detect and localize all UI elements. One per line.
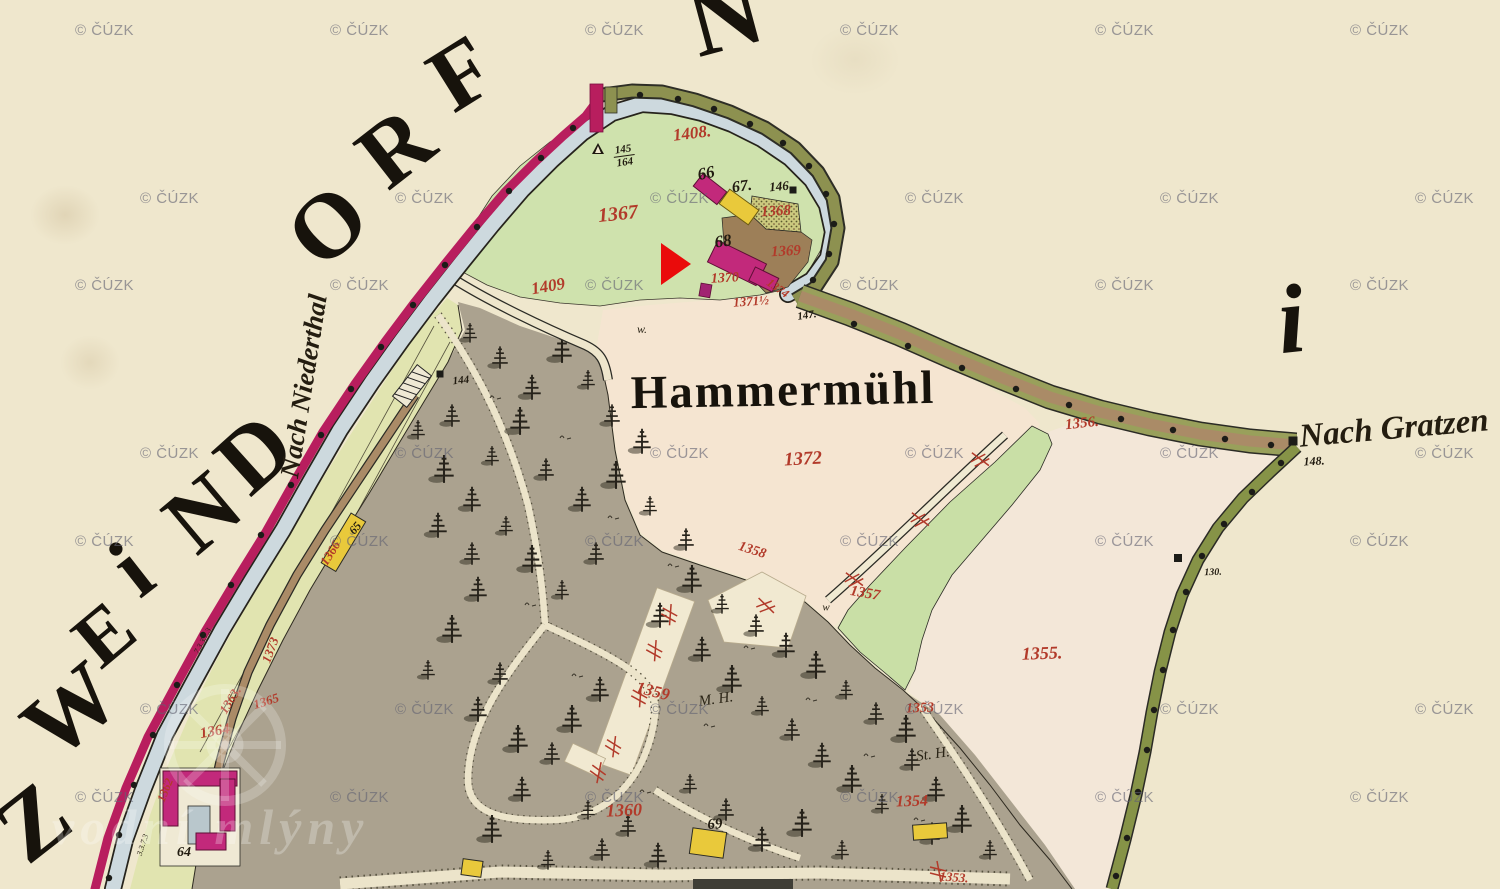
parcel-number: 1373 <box>259 636 280 665</box>
parcel-number: 1360 <box>606 800 643 819</box>
place-label: Nach Niederthal <box>276 292 332 479</box>
map-note: St. H. <box>915 745 951 765</box>
parcel-number: 1409 <box>530 275 566 298</box>
house-number: 144 <box>452 375 470 388</box>
territory-letter: O <box>269 167 384 283</box>
place-label: Hammermühl <box>630 365 935 417</box>
map-note: M. H. <box>698 690 734 710</box>
house-number: 68 <box>713 231 732 250</box>
parcel-number: 1353 <box>906 702 934 717</box>
parcel-number: 1357 <box>849 584 881 604</box>
map-labels: ZWEiNDORFNiHammermühlNach GratzenNach Ni… <box>0 0 1500 889</box>
territory-letter: Z <box>0 765 87 879</box>
cadastral-map-canvas: ZWEiNDORFNiHammermühlNach GratzenNach Ni… <box>0 0 1500 889</box>
parcel-number: 1369 <box>771 244 802 261</box>
parcel-number: 1367 <box>597 202 639 226</box>
location-marker-arrow-icon <box>661 243 691 285</box>
house-number: 67. <box>731 178 753 197</box>
parcel-number: 1358 <box>737 540 768 562</box>
territory-letter: i <box>1272 270 1309 370</box>
parcel-number: 1362 <box>155 777 175 804</box>
parcel-number: 1355. <box>1021 643 1062 662</box>
parcel-number: 1366 <box>318 539 343 568</box>
house-number: 66 <box>696 163 716 183</box>
territory-letter: F <box>413 19 509 127</box>
parcel-number: 1354 <box>896 793 929 810</box>
parcel-number: 1368 <box>761 204 792 221</box>
house-number: 147. <box>797 309 818 323</box>
map-note: w <box>822 603 829 614</box>
house-number: 146 <box>769 179 790 194</box>
parcel-number: 1363. <box>217 684 244 716</box>
house-number: 69 <box>707 817 723 833</box>
house-number: 64 <box>177 846 191 860</box>
parcel-number: 1371½ <box>733 293 770 308</box>
house-number: 130. <box>1204 568 1222 579</box>
parcel-number: 1370 <box>711 271 740 286</box>
parcel-number: 1365 <box>252 691 281 711</box>
territory-letter: N <box>677 0 773 74</box>
parcel-number: 1372 <box>784 449 823 470</box>
place-label: Nach Gratzen <box>1298 404 1490 453</box>
parcel-number: 1408. <box>672 122 712 144</box>
house-number: 65 <box>347 520 364 537</box>
point-number-fraction: 145164 <box>612 142 636 170</box>
parcel-number: 1359 <box>634 679 671 704</box>
parcel-number: 1353. <box>939 869 969 884</box>
house-number: 148. <box>1303 454 1325 467</box>
map-note: w. <box>637 323 647 335</box>
map-note: 7.3.3.7.3 <box>193 627 213 655</box>
map-note: 3.3.7.3 <box>136 833 150 856</box>
parcel-number: 1356. <box>1064 415 1099 433</box>
territory-letter: R <box>340 90 449 203</box>
parcel-number: 1364 <box>199 722 231 742</box>
